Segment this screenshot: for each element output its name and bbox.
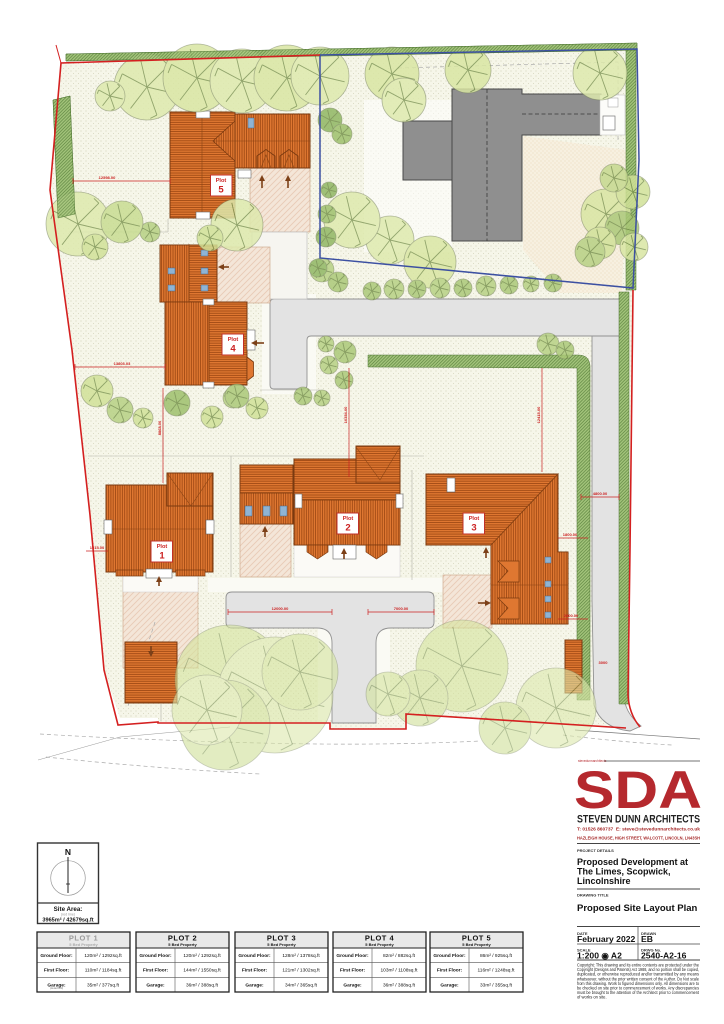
svg-text:5 Bed Property: 5 Bed Property bbox=[365, 942, 394, 947]
svg-text:3: 3 bbox=[471, 523, 476, 534]
svg-text:PLOT 5: PLOT 5 bbox=[462, 934, 491, 943]
svg-text:144m² / 1550sq.ft: 144m² / 1550sq.ft bbox=[183, 968, 221, 974]
svg-text:Garage:: Garage: bbox=[440, 982, 459, 988]
svg-text:of works on site.: of works on site. bbox=[577, 995, 607, 1000]
svg-text:10354.00: 10354.00 bbox=[343, 406, 348, 423]
svg-text:First Floor:: First Floor: bbox=[340, 968, 366, 974]
svg-text:1800.00: 1800.00 bbox=[563, 532, 578, 537]
svg-text:SDA: SDA bbox=[574, 761, 702, 820]
svg-text:DRAWING TITLE: DRAWING TITLE bbox=[577, 893, 609, 898]
svg-text:Plot: Plot bbox=[343, 516, 354, 522]
svg-text:36m² / 388sq.ft: 36m² / 388sq.ft bbox=[186, 982, 219, 988]
svg-text:PLOT 3: PLOT 3 bbox=[267, 934, 296, 943]
svg-text:PLOT 1: PLOT 1 bbox=[69, 934, 98, 943]
svg-text:Plot: Plot bbox=[216, 178, 227, 184]
svg-text:Plot: Plot bbox=[157, 544, 168, 550]
svg-text:12598.00: 12598.00 bbox=[99, 175, 116, 180]
svg-text:1:200 ◉ A2: 1:200 ◉ A2 bbox=[577, 951, 622, 961]
svg-text:36m² / 388sq.ft: 36m² / 388sq.ft bbox=[383, 982, 416, 988]
svg-text:7000.00: 7000.00 bbox=[394, 606, 409, 611]
svg-text:4: 4 bbox=[230, 344, 236, 355]
svg-text:103m² / 1108sq.ft: 103m² / 1108sq.ft bbox=[381, 968, 419, 974]
svg-text:13803.03: 13803.03 bbox=[114, 361, 131, 366]
svg-text:4800.00: 4800.00 bbox=[593, 491, 608, 496]
svg-text:12415.00: 12415.00 bbox=[536, 406, 541, 423]
svg-text:110m² / 1184sq.ft: 110m² / 1184sq.ft bbox=[85, 968, 122, 974]
svg-text:Garage:: Garage: bbox=[146, 982, 165, 988]
svg-text:Plot: Plot bbox=[469, 516, 480, 522]
svg-text:Garage:: Garage: bbox=[343, 982, 362, 988]
svg-text:First Floor:: First Floor: bbox=[437, 968, 463, 974]
svg-text:Plot: Plot bbox=[228, 337, 239, 343]
svg-text:N: N bbox=[65, 847, 71, 857]
svg-text:First Floor:: First Floor: bbox=[44, 968, 70, 974]
svg-text:3000: 3000 bbox=[599, 660, 609, 665]
svg-text:12000.00: 12000.00 bbox=[272, 606, 289, 611]
svg-text:1515.00: 1515.00 bbox=[90, 545, 105, 550]
svg-text:Garage:: Garage: bbox=[245, 982, 264, 988]
svg-text:(detached): (detached) bbox=[50, 986, 63, 990]
svg-text:HAZLEIGH HOUSE, HIGH STREET, W: HAZLEIGH HOUSE, HIGH STREET, WALCOTT, LI… bbox=[577, 836, 701, 841]
svg-text:Proposed Development at: Proposed Development at bbox=[577, 857, 688, 867]
svg-text:First Floor:: First Floor: bbox=[143, 968, 169, 974]
svg-text:T: 01526 860737 E: steve@stev: T: 01526 860737 E: steve@stevedunnarchit… bbox=[577, 827, 700, 832]
svg-text:2540-A2-16: 2540-A2-16 bbox=[641, 951, 687, 961]
svg-text:120m² / 1292sq.ft: 120m² / 1292sq.ft bbox=[84, 953, 122, 959]
svg-text:(red line): (red line) bbox=[61, 913, 75, 917]
svg-text:8868.00: 8868.00 bbox=[157, 420, 162, 435]
svg-text:The Limes, Scopwick,: The Limes, Scopwick, bbox=[577, 867, 671, 877]
svg-text:First Floor:: First Floor: bbox=[242, 968, 268, 974]
svg-text:2: 2 bbox=[345, 523, 350, 534]
svg-text:Ground Floor:: Ground Floor: bbox=[139, 953, 172, 959]
svg-text:5 Bed Property: 5 Bed Property bbox=[462, 942, 491, 947]
svg-text:35m² / 377sq.ft: 35m² / 377sq.ft bbox=[87, 982, 120, 988]
svg-text:PLOT 4: PLOT 4 bbox=[365, 934, 395, 943]
svg-text:121m² / 1302sq.ft: 121m² / 1302sq.ft bbox=[282, 968, 320, 974]
svg-text:Ground Floor:: Ground Floor: bbox=[238, 953, 271, 959]
svg-text:3965m² / 42679sq.ft: 3965m² / 42679sq.ft bbox=[42, 917, 93, 924]
svg-text:Ground Floor:: Ground Floor: bbox=[40, 953, 73, 959]
svg-text:February 2022: February 2022 bbox=[577, 934, 636, 944]
svg-text:34m² / 365sq.ft: 34m² / 365sq.ft bbox=[285, 982, 318, 988]
svg-text:86m² / 925sq.ft: 86m² / 925sq.ft bbox=[480, 953, 513, 959]
svg-text:2800.00: 2800.00 bbox=[564, 613, 579, 618]
svg-text:5 Bed Property: 5 Bed Property bbox=[69, 942, 98, 947]
svg-text:STEVEN DUNN ARCHITECTS: STEVEN DUNN ARCHITECTS bbox=[577, 814, 700, 826]
svg-text:82m² / 882sq.ft: 82m² / 882sq.ft bbox=[383, 953, 416, 959]
svg-text:Ground Floor:: Ground Floor: bbox=[336, 953, 369, 959]
svg-text:PROJECT DETAILS: PROJECT DETAILS bbox=[577, 848, 614, 853]
svg-text:120m² / 1292sq.ft: 120m² / 1292sq.ft bbox=[183, 953, 221, 959]
svg-text:33m² / 355sq.ft: 33m² / 355sq.ft bbox=[480, 982, 513, 988]
svg-text:5 Bed Property: 5 Bed Property bbox=[267, 942, 296, 947]
svg-text:PLOT 2: PLOT 2 bbox=[168, 934, 197, 943]
svg-text:Proposed Site Layout Plan: Proposed Site Layout Plan bbox=[577, 903, 698, 914]
svg-text:5 Bed Property: 5 Bed Property bbox=[168, 942, 197, 947]
svg-text:116m² / 1248sq.ft: 116m² / 1248sq.ft bbox=[478, 968, 516, 974]
svg-text:EB: EB bbox=[641, 934, 653, 944]
svg-text:5: 5 bbox=[218, 185, 224, 196]
svg-text:1: 1 bbox=[159, 551, 165, 562]
svg-text:Ground Floor:: Ground Floor: bbox=[433, 953, 466, 959]
svg-text:Lincolnshire: Lincolnshire bbox=[577, 876, 631, 886]
svg-text:128m² / 1378sq.ft: 128m² / 1378sq.ft bbox=[282, 953, 320, 959]
